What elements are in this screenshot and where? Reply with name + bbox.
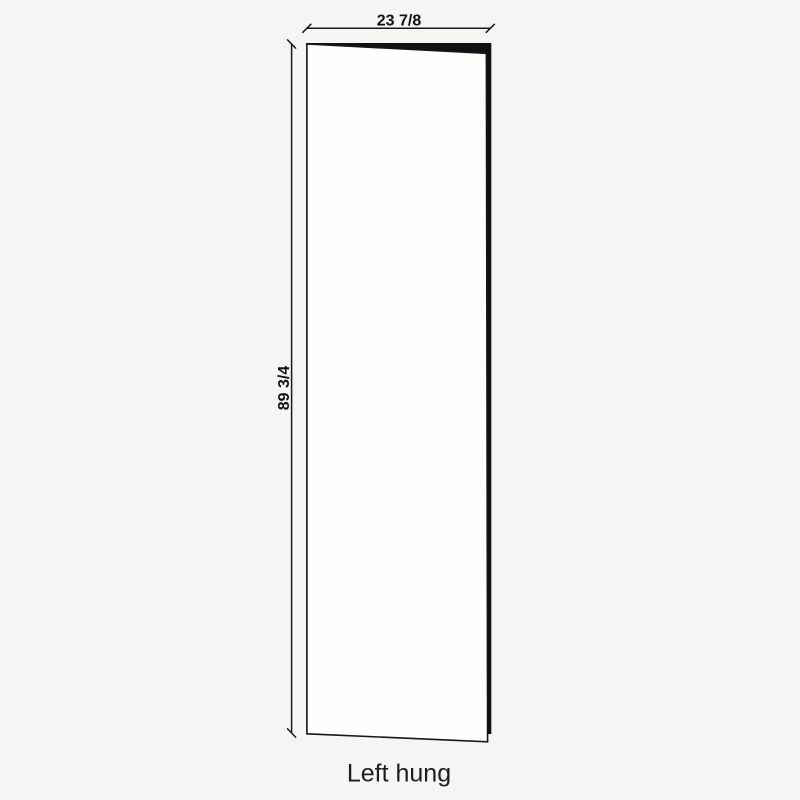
svg-text:89 3/4: 89 3/4 <box>276 366 293 411</box>
svg-text:Left hung: Left hung <box>347 760 451 788</box>
svg-text:23 7/8: 23 7/8 <box>377 13 422 30</box>
